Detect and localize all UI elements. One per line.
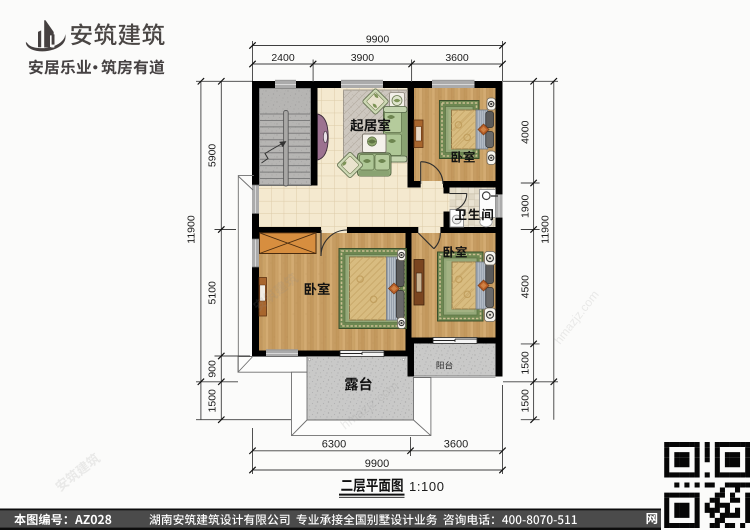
svg-text:3600: 3600	[444, 439, 468, 451]
svg-text:900: 900	[207, 360, 219, 378]
svg-text:2400: 2400	[271, 52, 295, 64]
svg-text:5900: 5900	[207, 144, 219, 168]
svg-text:5100: 5100	[207, 281, 219, 305]
svg-text:1:100: 1:100	[409, 479, 445, 494]
svg-text:1500: 1500	[520, 351, 532, 375]
svg-text:3600: 3600	[445, 52, 469, 64]
svg-text:1500: 1500	[520, 389, 532, 413]
svg-text:3900: 3900	[351, 52, 375, 64]
svg-text:9900: 9900	[366, 34, 390, 46]
svg-text:4500: 4500	[520, 275, 532, 299]
svg-text:11900: 11900	[186, 215, 198, 244]
svg-text:11900: 11900	[540, 215, 552, 244]
svg-text:1900: 1900	[520, 194, 532, 218]
svg-text:9900: 9900	[365, 458, 389, 470]
svg-text:6300: 6300	[322, 439, 346, 451]
svg-text:4000: 4000	[520, 120, 532, 144]
svg-text:1500: 1500	[207, 389, 219, 413]
